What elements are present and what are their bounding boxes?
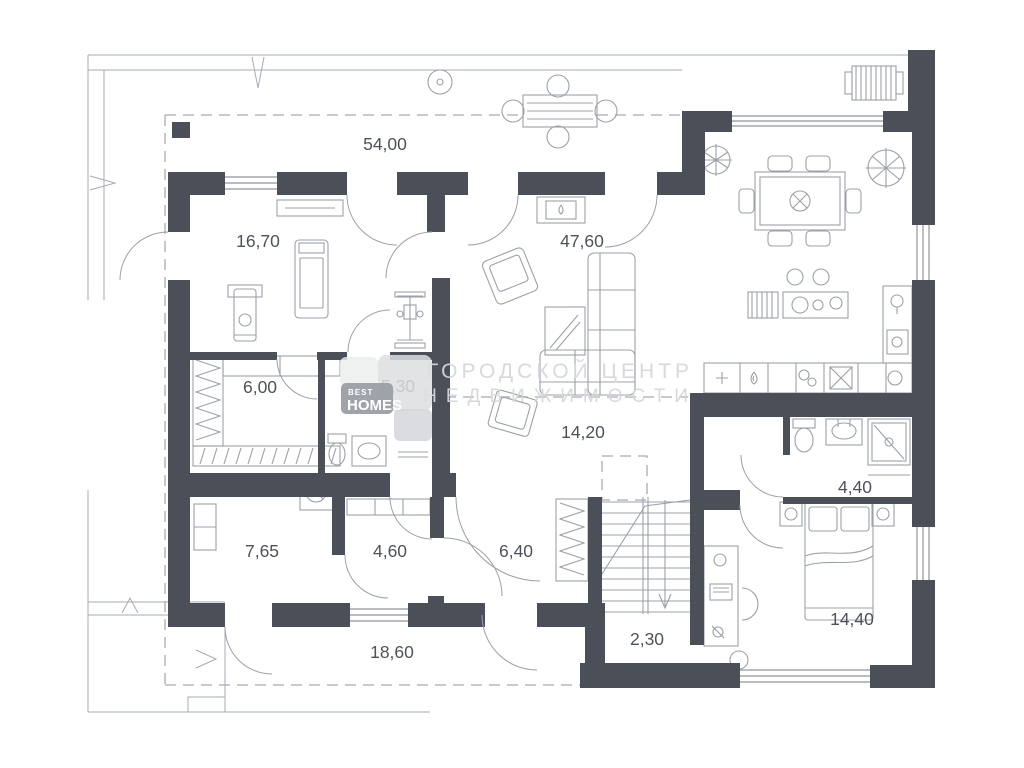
- wardrobe-hall: [556, 499, 588, 581]
- logo-text-bottom: HOMES: [347, 397, 402, 414]
- grill-icon: [845, 66, 903, 100]
- room-label-gym: 16,70: [236, 231, 280, 251]
- porch-arrow-up-icon: [122, 598, 138, 613]
- armchair: [481, 246, 539, 305]
- kitchen-counter-right: [883, 286, 912, 363]
- watermark-line1: ГОРОДСКОЙ ЦЕНТР: [427, 359, 693, 383]
- room-label-entry-hall: 6,40: [499, 541, 533, 561]
- toilet-icon: [793, 419, 815, 452]
- sink-icon: [887, 330, 908, 354]
- fireplace: [537, 197, 585, 223]
- watermark-line2: НЕДВИЖИМОСТИ: [423, 386, 697, 407]
- window-bedroom-bottom: [740, 670, 870, 682]
- logo-text-top: BEST: [348, 388, 373, 397]
- shower-icon: [868, 419, 910, 465]
- room-label-terrace-bottom: 18,60: [370, 642, 414, 662]
- room-label-laundry: 4,60: [373, 541, 407, 561]
- kettle-icon: [830, 297, 842, 309]
- towel-rail-icon: [398, 452, 428, 457]
- gutter-arrow-down-icon: [252, 57, 264, 88]
- room-label-room-bl: 7,65: [245, 541, 279, 561]
- glass-icon: [891, 295, 903, 307]
- terrace-pillar: [172, 122, 190, 138]
- window-bottom-left: [350, 609, 408, 621]
- room-label-sauna: 6,00: [243, 377, 277, 397]
- toilet-icon: [328, 434, 346, 465]
- bed: [805, 502, 873, 620]
- terrace-lamp-icon: [428, 70, 452, 94]
- kitchen-counter: [704, 363, 912, 393]
- weight-machine: [395, 292, 425, 348]
- room-label-bathroom-right: 4,40: [838, 477, 872, 497]
- room-label-bedroom: 14,40: [830, 609, 874, 629]
- logo-best-homes: BEST HOMES: [340, 355, 432, 441]
- washbasin-icon: [826, 419, 862, 445]
- nightstand: [780, 502, 802, 526]
- sink-icon: [792, 297, 808, 313]
- outdoor-table: [502, 75, 617, 148]
- plant-icon: [888, 371, 902, 385]
- room-label-hallway: 14,20: [561, 422, 605, 442]
- window-bedroom-right: [917, 527, 929, 580]
- tv-console: [277, 200, 343, 216]
- kitchen-island: [748, 269, 848, 318]
- gutter-arrow-right-icon: [90, 176, 115, 190]
- logo-tile: [340, 357, 378, 386]
- floor-plan: 54,00 16,70 47,60 6,00 5,30 14,20 4,40 7…: [0, 0, 1024, 768]
- plant-icon: [866, 148, 906, 188]
- room-label-terrace-top: 54,00: [363, 134, 407, 154]
- desk-lamp-icon: [714, 554, 726, 566]
- cabinet: [194, 504, 216, 550]
- window-right-upper: [917, 225, 929, 280]
- nightstand: [872, 502, 894, 526]
- laundry-counter: [347, 499, 430, 515]
- wardrobe-sauna: [193, 356, 340, 466]
- desk: [704, 546, 738, 646]
- window-gym: [225, 177, 277, 189]
- treadmill: [295, 240, 328, 318]
- window-dining: [732, 116, 883, 126]
- entry-ramp-arrow-icon: [196, 650, 216, 668]
- desk-chair: [742, 588, 758, 620]
- bar-stool: [813, 269, 829, 285]
- entry-step: [188, 697, 225, 712]
- hob-flame-icon: [751, 372, 757, 384]
- washbasin-icon: [352, 436, 386, 466]
- coffee-table: [545, 307, 585, 355]
- stairs-direction-arrow: [659, 500, 671, 608]
- exercise-bike: [228, 285, 262, 341]
- bar-stool: [787, 269, 803, 285]
- room-label-living-room: 47,60: [560, 231, 604, 251]
- watermark: ГОРОДСКОЙ ЦЕНТР НЕДВИЖИМОСТИ: [423, 359, 697, 407]
- flame-icon: [559, 205, 563, 214]
- staircase: [602, 456, 690, 614]
- plus-icon: [716, 372, 728, 384]
- room-label-stairs: 2,30: [630, 629, 664, 649]
